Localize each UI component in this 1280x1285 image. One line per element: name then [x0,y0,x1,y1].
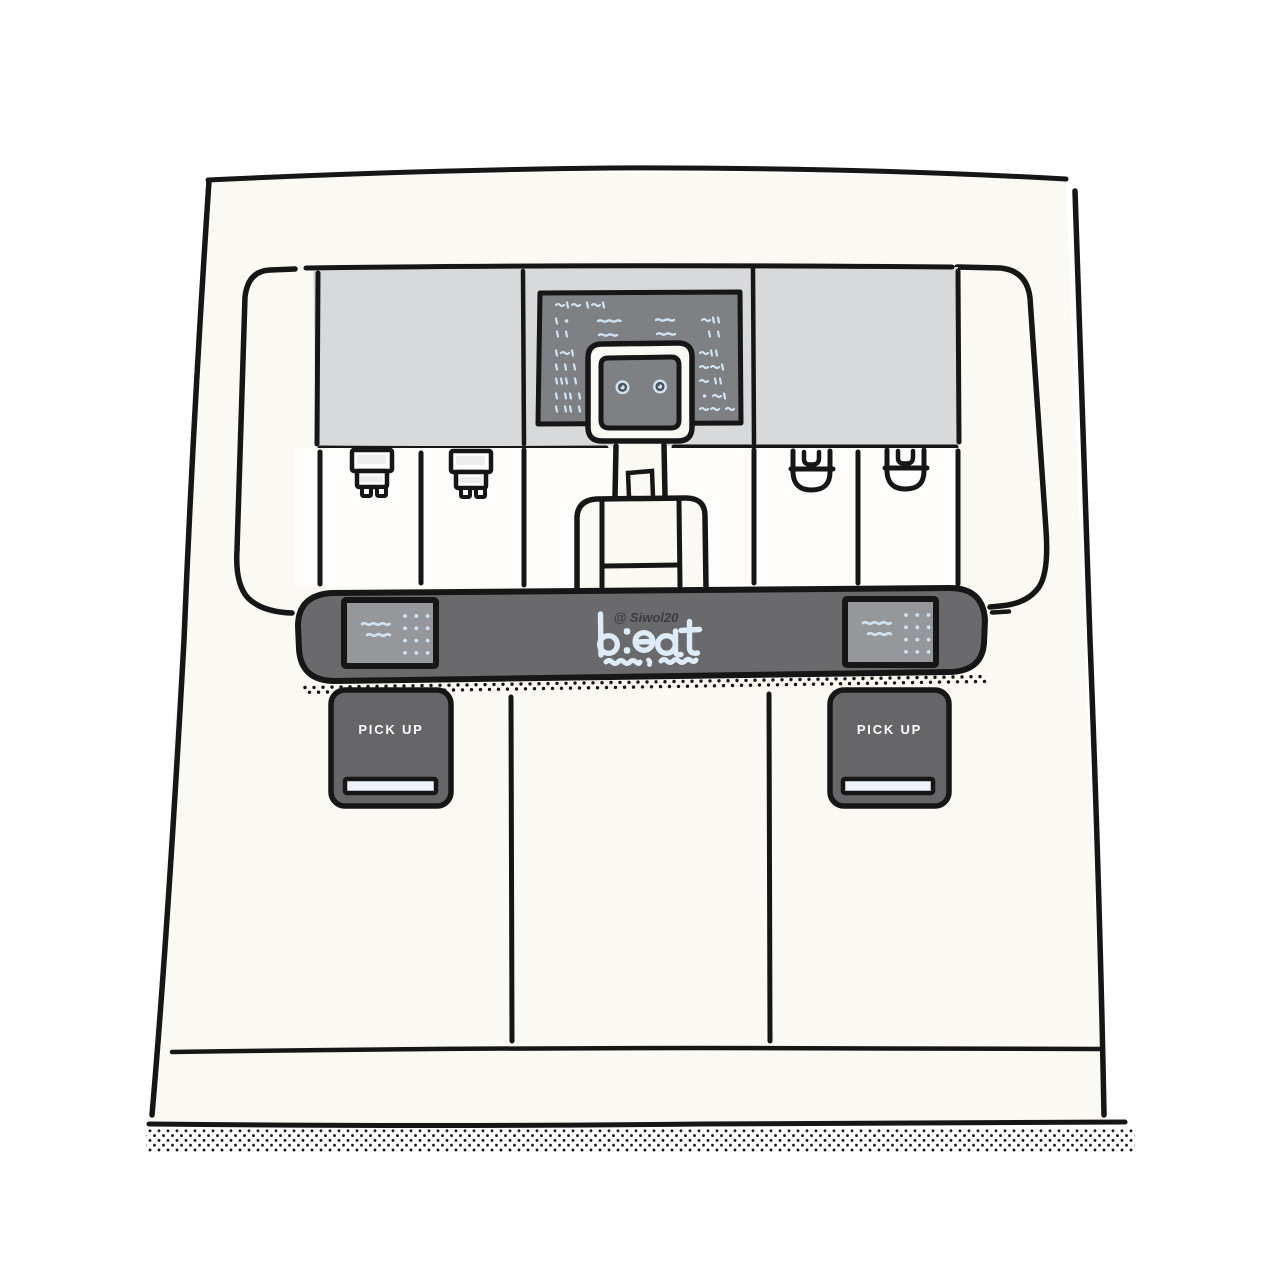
svg-text:PICK UP: PICK UP [857,722,922,737]
svg-text:@ Siwol20: @ Siwol20 [614,610,679,625]
svg-text:PICK UP: PICK UP [358,722,423,737]
